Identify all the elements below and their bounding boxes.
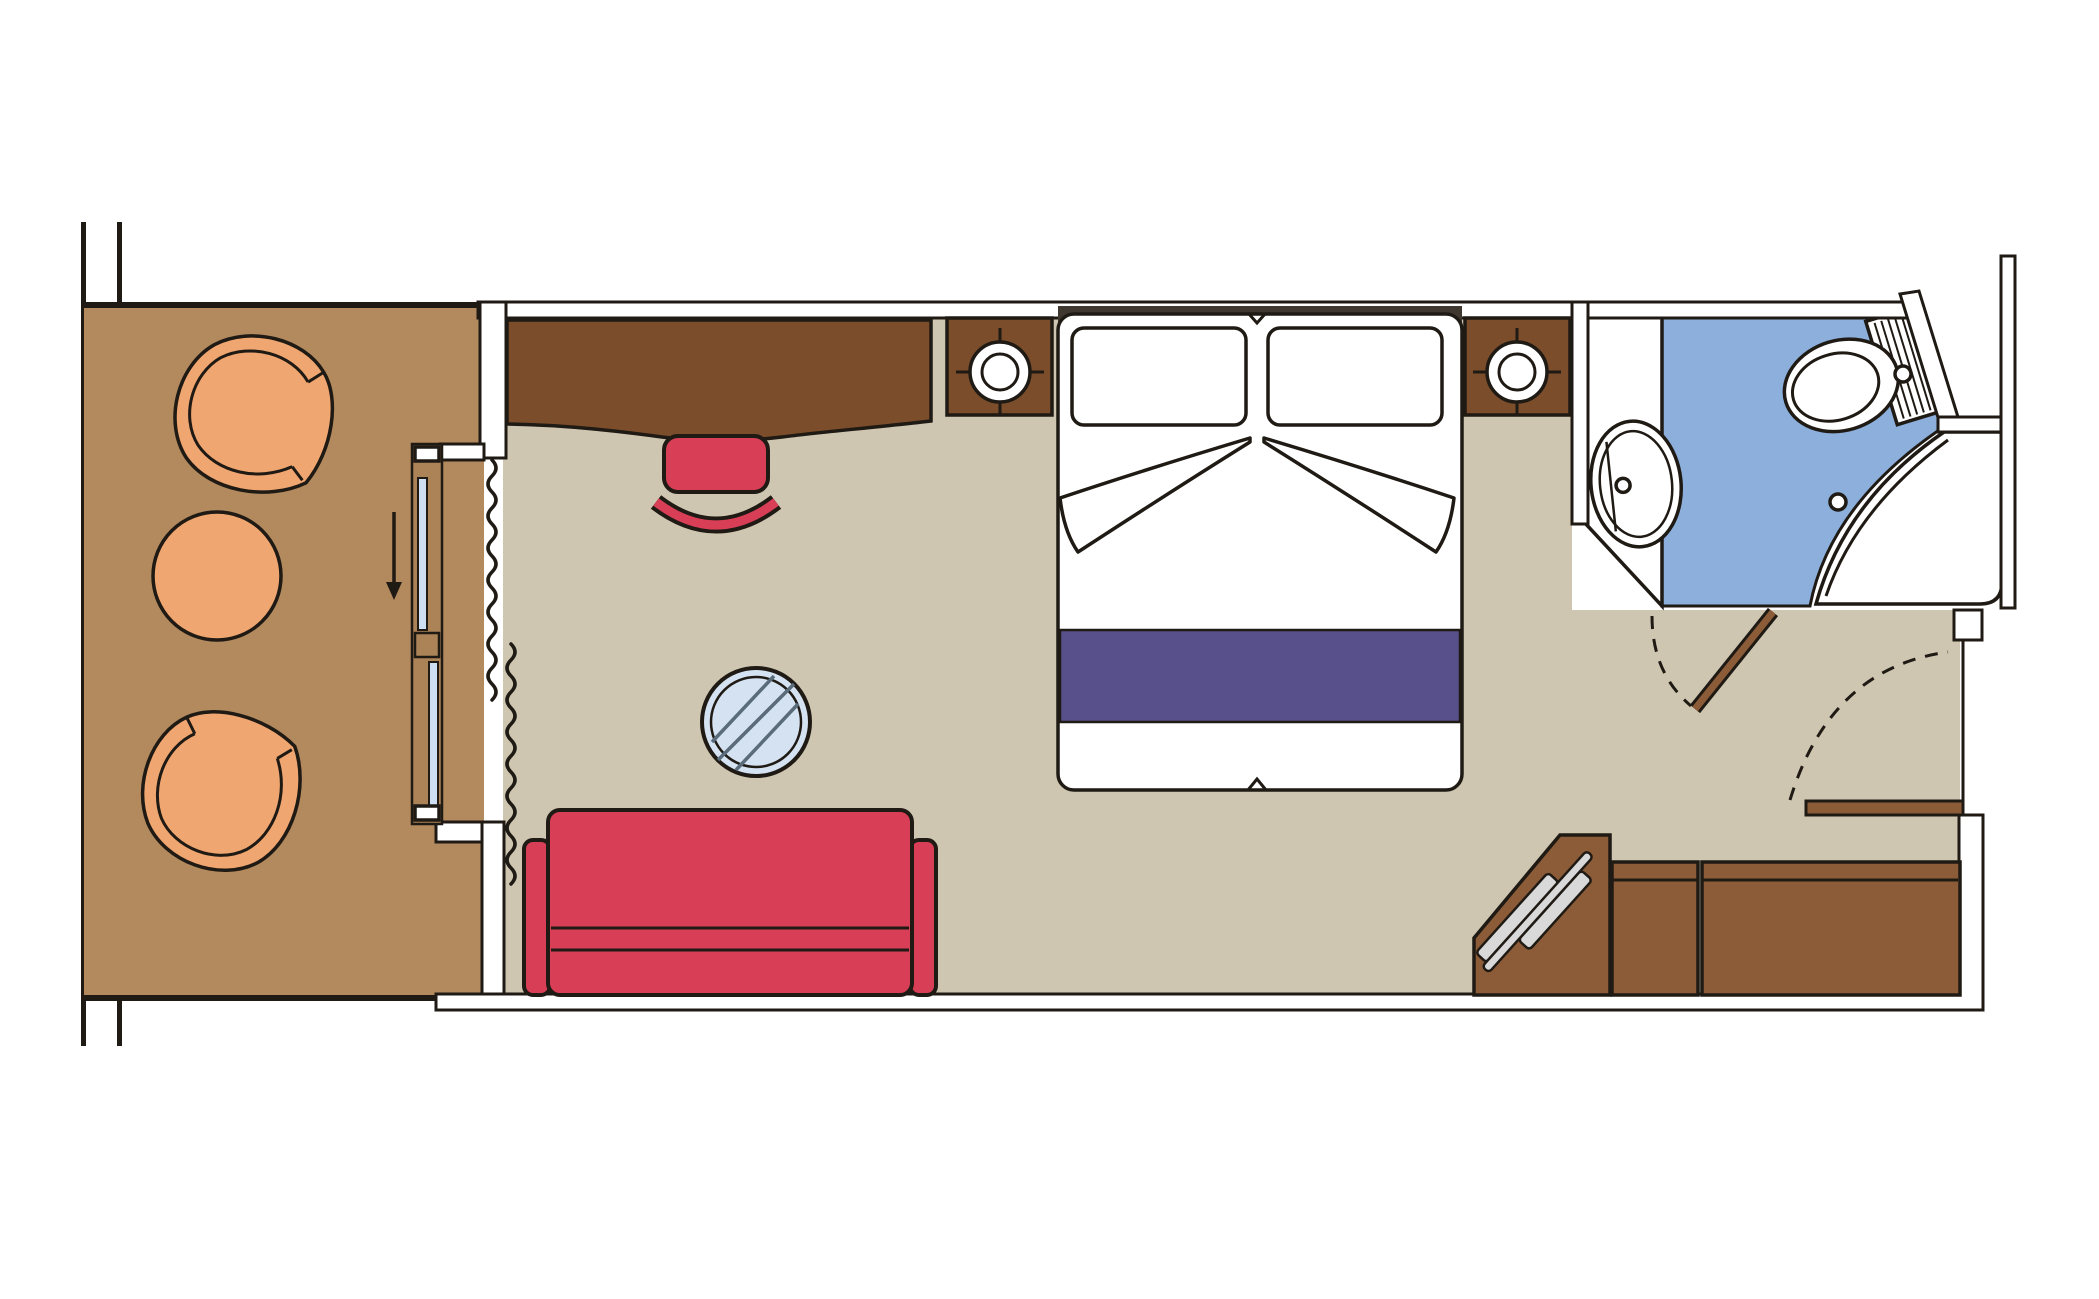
cabin-west-wall-lower (482, 822, 504, 996)
balcony-table (153, 512, 281, 640)
door-jog-wall (440, 444, 484, 460)
sofa (524, 810, 936, 995)
cabin-floor-plan (0, 0, 2099, 1299)
sliding-glass-door (412, 444, 442, 824)
desk (507, 320, 931, 441)
entry-door-jamb (1954, 610, 1982, 640)
floor-plan-page (0, 0, 2099, 1299)
nightstand-left (947, 318, 1052, 416)
slider-pane-upper (418, 478, 427, 630)
slider-pane-lower (429, 662, 438, 808)
double-bed (1058, 306, 1462, 790)
wardrobe-cabinet-right (1702, 862, 1960, 995)
nightstand-right (1465, 318, 1570, 416)
entry-door-panel (1806, 801, 1963, 815)
glass-coffee-table (702, 668, 810, 776)
balcony-bottom-rail (84, 995, 438, 1001)
east-wall-upper (2001, 256, 2015, 608)
pillow-right (1268, 328, 1442, 425)
pillow-left (1072, 328, 1246, 425)
stool (664, 436, 768, 492)
wardrobe-cabinet-mid (1612, 862, 1698, 995)
balcony-top-rail (84, 302, 482, 308)
bed-runner (1060, 630, 1460, 722)
sofa-body (548, 810, 912, 995)
cabin-west-wall-upper (480, 302, 506, 458)
bathroom-west-wall (1572, 302, 1588, 524)
bathroom-ne-wall (1938, 417, 2004, 432)
